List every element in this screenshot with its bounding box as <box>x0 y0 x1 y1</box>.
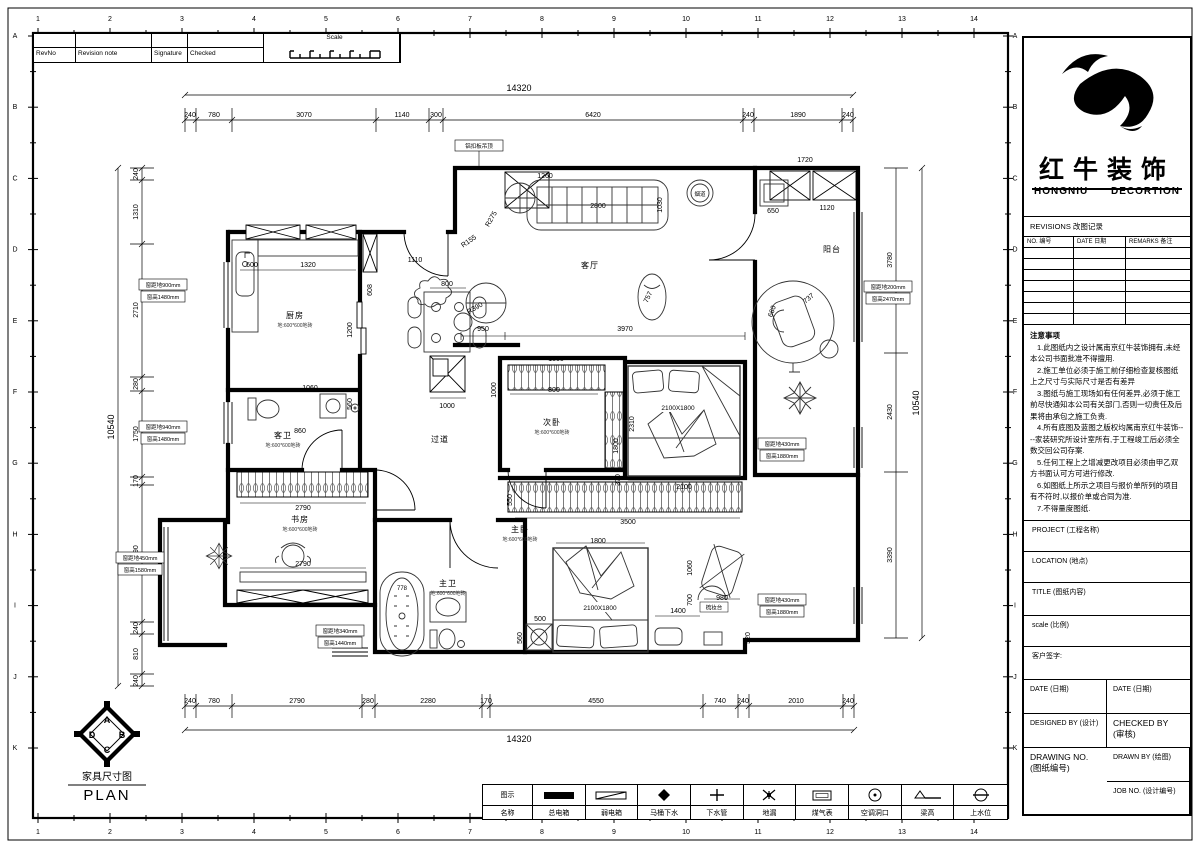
rev-cell <box>1024 303 1074 314</box>
dim: 700 <box>687 594 694 606</box>
ruler-letter-left: F <box>13 389 17 396</box>
dim: 240 <box>842 112 854 119</box>
dim: 2790 <box>295 505 311 512</box>
dim: 3500 <box>620 519 636 526</box>
window-note-line2: 窗高1440mm <box>324 639 357 647</box>
ruler-number-top: 12 <box>826 16 834 23</box>
dim: 300 <box>430 112 442 119</box>
dim: 240 <box>133 168 140 180</box>
field-designed-by: DESIGNED BY (设计) <box>1024 714 1107 748</box>
dim: 240 <box>184 112 196 119</box>
field-location: LOCATION (地点) <box>1024 552 1190 583</box>
ruler-number-bottom: 6 <box>396 829 400 836</box>
rev-cell <box>1024 259 1074 270</box>
window-note-line2: 窗高1480mm <box>147 293 180 301</box>
dim: 1110 <box>408 257 423 264</box>
armchair-back <box>644 285 660 289</box>
room-note: 地:600*600地砖 <box>265 442 300 449</box>
dim: 608 <box>367 284 374 296</box>
dim: 1060 <box>687 560 694 576</box>
dim: 3970 <box>617 326 633 333</box>
ruler-letter-left: H <box>12 531 17 538</box>
rev-cell <box>1074 292 1126 303</box>
window-note-line2: 窗高2470mm <box>872 295 905 303</box>
rev-cell <box>1074 281 1126 292</box>
dim: 2310 <box>629 416 636 432</box>
dim: 1120 <box>819 205 834 212</box>
plan-title-block: A B C D 家具尺寸图 PLAN <box>68 701 146 804</box>
window-note-line1: 窗距地900mm <box>146 281 181 289</box>
ruler-letter-right: B <box>1013 104 1018 111</box>
master-bed-size-label: 2100X1800 <box>583 605 617 612</box>
room-label-master-bath: 主卫 <box>439 578 457 588</box>
dim: 780 <box>208 112 220 119</box>
dim: 170 <box>480 698 492 705</box>
dim: 810 <box>133 648 140 660</box>
legend-name: 地漏 <box>744 806 797 820</box>
window-note-line2: 窗高1880mm <box>766 452 799 460</box>
ruler-number-top: 9 <box>612 16 616 23</box>
dim: 3390 <box>887 547 894 563</box>
dim: 240 <box>133 622 140 634</box>
ruler-letter-right: K <box>1013 745 1018 752</box>
company-logo-box: 红牛装饰 HONGNIU DECORTION <box>1024 38 1190 217</box>
dim: 240 <box>742 112 754 119</box>
dim: 1260 <box>537 173 553 180</box>
field-drawn-by: DRAWN BY (绘图) <box>1107 748 1190 782</box>
window-note-line1: 窗距地430mm <box>765 440 800 448</box>
note-item: 1.此图纸内之设计属南京红牛装饰拥有,未经本公司书面批准不得擅用. <box>1030 342 1184 365</box>
legend-symbol-toilet-drain <box>638 785 691 806</box>
master-misc <box>655 544 744 645</box>
dim: 2710 <box>133 302 140 318</box>
legend-symbol-beam-height <box>902 785 955 806</box>
room-note: 地:600*600地砖 <box>277 322 312 329</box>
ruler-letter-right: F <box>1013 389 1017 396</box>
company-name-cn: 红牛装饰 <box>1032 150 1182 190</box>
scale-bar <box>286 47 384 61</box>
room-note: 地:600*600地砖 <box>502 536 537 543</box>
field-job-no: JOB NO. (设计编号) <box>1107 782 1190 816</box>
ruler-number-bottom: 7 <box>468 829 472 836</box>
window-note: 窗距地340mm 窗高1440mm <box>316 625 364 648</box>
ruler-letter-left: K <box>13 745 18 752</box>
field-client-sign: 客户签字: <box>1024 647 1190 680</box>
ruler-number-top: 8 <box>540 16 544 23</box>
room-label-guest-bath: 客卫 <box>274 430 292 440</box>
ruler-letter-left: E <box>13 318 18 325</box>
ruler-number-bottom: 10 <box>682 829 690 836</box>
legend-symbol-floor-drain <box>744 785 797 806</box>
walls <box>160 168 858 652</box>
rev-cell <box>1024 281 1074 292</box>
rev-cell <box>1074 259 1126 270</box>
ruler-letter-left: G <box>12 460 17 467</box>
dim: 1890 <box>790 112 806 119</box>
ruler-letter-left: D <box>12 247 17 254</box>
ceiling-note-label: 铝扣板吊顶 <box>465 142 493 150</box>
window-note: 窗距地940mm 窗高1480mm <box>139 421 187 444</box>
dim: 1320 <box>300 262 316 269</box>
room-label-hallway: 过道 <box>431 434 449 444</box>
ruler-number-bottom: 2 <box>108 829 112 836</box>
ruler-number-bottom: 12 <box>826 829 834 836</box>
compass-b: B <box>119 730 126 740</box>
rev-cell <box>1126 270 1190 281</box>
dim: 1060 <box>302 385 318 392</box>
ruler-number-top: 10 <box>682 16 690 23</box>
ruler-letter-right: G <box>1012 460 1017 467</box>
compass-nub <box>134 731 140 737</box>
window-note: 窗距地450mm 窗高1580mm <box>116 552 164 575</box>
window-note-line2: 窗高1480mm <box>147 435 180 443</box>
dim: 1800 <box>590 538 606 545</box>
ruler-number-top: 6 <box>396 16 400 23</box>
dim: 1200 <box>347 322 354 338</box>
bed2-size-label: 2100X1800 <box>661 405 695 412</box>
dim: 2280 <box>420 698 436 705</box>
room-note: 地:600*600地砖 <box>282 526 317 533</box>
checked-header: Checked <box>188 48 263 57</box>
dim: 650 <box>767 208 779 215</box>
ruler-letter-right: D <box>1012 247 1017 254</box>
rev-cell <box>1074 270 1126 281</box>
rev-cell <box>1126 303 1190 314</box>
legend-name: 梁高 <box>902 806 955 820</box>
dim: 240 <box>842 698 854 705</box>
flue-label: 烟道 <box>694 190 706 198</box>
room-label-balcony: 阳台 <box>823 244 841 254</box>
room-label-bedroom2: 次卧 <box>543 417 561 427</box>
window-note-line1: 窗距地450mm <box>123 554 158 562</box>
note-item: 5.任何工程上之增减更改项目必须由甲乙双方书面认可方可进行修改. <box>1030 457 1184 480</box>
rev-cell <box>1074 248 1126 259</box>
dim: 600 <box>246 262 258 269</box>
ruler-number-bottom: 8 <box>540 829 544 836</box>
dim: 4550 <box>588 698 604 705</box>
ruler-number-bottom: 14 <box>970 829 978 836</box>
compass-a: A <box>104 715 111 725</box>
ruler-number-top: 13 <box>898 16 906 23</box>
legend-name: 空调洞口 <box>849 806 902 820</box>
legend-name: 总电箱 <box>533 806 586 820</box>
compass-nub <box>74 731 80 737</box>
legend-name: 下水管 <box>691 806 744 820</box>
company-en-right: DECORTION <box>1111 186 1180 197</box>
shower-box <box>526 624 552 650</box>
legend-name: 上水位 <box>954 806 1007 820</box>
room-label-study: 书房 <box>291 514 309 524</box>
compass-d: D <box>89 730 96 740</box>
title-block-panel: 红牛装饰 HONGNIU DECORTION REVISIONS 改图记录 NO… <box>1022 36 1192 816</box>
legend-symbol-low-voltage <box>586 785 639 806</box>
plan-title-cn: 家具尺寸图 <box>82 770 132 783</box>
rev-cell <box>1126 314 1190 325</box>
dim: R155 <box>460 234 478 249</box>
dim: 6420 <box>585 112 601 119</box>
compass-nub <box>104 701 110 707</box>
rev-cell <box>1024 248 1074 259</box>
dim: 240 <box>737 698 749 705</box>
window-note-line1: 窗距地200mm <box>871 283 906 291</box>
rev-cell <box>1126 259 1190 270</box>
revno-header: RevNo <box>34 48 75 57</box>
ruler-letter-right: I <box>1014 603 1016 610</box>
dim: 2800 <box>590 203 606 210</box>
compass-c: C <box>104 745 111 755</box>
dim: 240 <box>184 698 196 705</box>
compass-nub <box>104 761 110 767</box>
ruler-letter-right: H <box>1012 531 1017 538</box>
ruler-number-top: 4 <box>252 16 256 23</box>
window-note-line1: 窗距地340mm <box>323 627 358 635</box>
field-scale: scale (比例) <box>1024 616 1190 647</box>
ruler-number-bottom: 1 <box>36 829 40 836</box>
dim: 550 <box>507 494 514 506</box>
rev-col-no: NO. 编号 <box>1024 237 1074 248</box>
dim: 1720 <box>797 157 813 164</box>
rev-col-remarks: REMARKS 备注 <box>1126 237 1190 248</box>
field-checked-by: CHECKED BY (审核) <box>1107 714 1190 748</box>
revision-strip: RevNo Revision note Signature Checked Sc… <box>33 33 401 63</box>
room-note: 地:600*600地砖 <box>534 429 569 436</box>
dim: 800 <box>548 387 560 394</box>
dim: 950 <box>477 326 489 333</box>
dim: 280 <box>133 378 140 390</box>
dim: 2010 <box>788 698 804 705</box>
window-note: 窗距地430mm 窗高1880mm <box>758 438 806 461</box>
ruler-number-top: 5 <box>324 16 328 23</box>
window-note-line2: 窗高1880mm <box>766 608 799 616</box>
legend-symbol-header: 图示 <box>483 785 533 806</box>
company-name-en: HONGNIU DECORTION <box>1034 186 1180 197</box>
rev-cell <box>1024 292 1074 303</box>
dim: 980 <box>716 595 728 602</box>
dim: 2100 <box>676 484 692 491</box>
rev-cell <box>1126 281 1190 292</box>
legend-symbol-ac-hole <box>849 785 902 806</box>
plan-title-en: PLAN <box>83 787 130 804</box>
window-note-line1: 窗距地430mm <box>765 596 800 604</box>
room-label-master: 主卧 <box>511 524 529 534</box>
dim: 778 <box>397 586 408 592</box>
dim: R390 <box>466 301 484 315</box>
notes-block: 注意事项 1.此图纸内之设计属南京红牛装饰拥有,未经本公司书面批准不得擅用. 2… <box>1024 325 1190 521</box>
rev-cell <box>1024 270 1074 281</box>
dresser-label: 梳妆台 <box>706 604 723 612</box>
ruler-number-bottom: 3 <box>180 829 184 836</box>
plan-canvas: 11223344556677889910101111121213131414AA… <box>0 0 1200 848</box>
field-title: TITLE (图纸内容) <box>1024 583 1190 616</box>
dim: 740 <box>714 698 726 705</box>
dim: 1140 <box>394 112 409 119</box>
window-note: 窗距地200mm 窗高2470mm <box>864 281 912 304</box>
dim: R275 <box>484 210 498 228</box>
rev-cell <box>1126 292 1190 303</box>
note-item: 6.如图纸上所示之项目与报价单所列的项目有不符时,以报价单或合同为准. <box>1030 480 1184 503</box>
rev-cell <box>1024 314 1074 325</box>
window-annotations: 窗距地900mm 窗高1480mm 窗距地940mm 窗高1480mm 窗距地4… <box>116 279 912 648</box>
dim: 560 <box>517 632 524 644</box>
ruler-letter-left: J <box>13 674 17 681</box>
rev-cell <box>1074 303 1126 314</box>
legend-name: 煤气表 <box>796 806 849 820</box>
room-note: 地:600*600地砖 <box>430 590 465 597</box>
ruler-number-top: 3 <box>180 16 184 23</box>
dim: 860 <box>294 428 306 435</box>
scale-header: Scale <box>326 34 342 41</box>
dim: 280 <box>362 698 374 705</box>
dim: 2790 <box>289 698 305 705</box>
ruler-number-bottom: 5 <box>324 829 328 836</box>
bed-master <box>553 546 648 652</box>
dim: 1000 <box>491 382 498 398</box>
field-project: PROJECT (工程名称) <box>1024 521 1190 552</box>
ruler-number-bottom: 4 <box>252 829 256 836</box>
window-note: 窗距地900mm 窗高1480mm <box>139 279 187 302</box>
dim: 3070 <box>296 112 312 119</box>
drawing-sheet: 11223344556677889910101111121213131414AA… <box>0 0 1200 848</box>
notes-title: 注意事项 <box>1030 330 1184 342</box>
window-note-line2: 窗高1580mm <box>124 566 157 574</box>
dim: 500 <box>534 616 546 623</box>
company-en-left: HONGNIU <box>1034 186 1088 197</box>
dim: 800 <box>441 281 453 288</box>
rev-cell <box>1126 248 1190 259</box>
dim: 780 <box>208 698 220 705</box>
guest-bath-fixtures <box>248 394 359 420</box>
signature-header: Signature <box>152 48 187 57</box>
bed-bedroom2 <box>628 366 740 476</box>
dim: 1400 <box>670 608 686 615</box>
note-item: 2.施工单位必须于施工前仔细检查复核图纸上之尺寸与实际尺寸是否有差异 <box>1030 365 1184 388</box>
window-note-line1: 窗距地940mm <box>146 423 181 431</box>
ruler-number-top: 14 <box>970 16 978 23</box>
dim: 520 <box>745 632 752 644</box>
dim-top-total: 14320 <box>506 83 531 93</box>
room-label-living: 客厅 <box>581 260 599 270</box>
dim: 1800 <box>613 438 620 454</box>
dim: 1000 <box>439 403 455 410</box>
rev-col-date: DATE 日期 <box>1074 237 1126 248</box>
legend-symbol-main-electric <box>533 785 586 806</box>
window-note: 窗距地430mm 窗高1880mm <box>758 594 806 617</box>
ruler-number-bottom: 9 <box>612 829 616 836</box>
field-drawing-no: DRAWING NO. (图纸编号) <box>1024 748 1107 816</box>
revisions-table: NO. 编号 DATE 日期 REMARKS 备注 <box>1024 237 1190 325</box>
dim-bottom-total: 14320 <box>506 734 531 744</box>
dim: 370 <box>615 474 622 486</box>
legend-name-header: 名称 <box>483 806 533 820</box>
dim: 737 <box>802 292 816 305</box>
ruler-letter-left: C <box>12 175 17 182</box>
legend-name: 马桶下水 <box>638 806 691 820</box>
ruler-letter-left: A <box>13 33 18 40</box>
company-logo-icon <box>1024 40 1190 148</box>
ruler-number-bottom: 13 <box>898 829 906 836</box>
room-label-kitchen: 厨房 <box>286 310 304 320</box>
note-item: 3.图纸与施工现场如有任何差异,必须于施工前尽快通知本公司有关部门,否则一切责任… <box>1030 388 1184 423</box>
legend-symbol-water-supply <box>954 785 1007 806</box>
dim: 1310 <box>133 204 140 220</box>
ruler-number-top: 1 <box>36 16 40 23</box>
dim: 757 <box>643 291 654 305</box>
ruler-letter-right: J <box>1013 674 1017 681</box>
dim: 560 <box>347 398 354 410</box>
legend-symbol-gas-meter <box>796 785 849 806</box>
legend-symbol-drain-pipe <box>691 785 744 806</box>
note-item: 4.所有底图及蓝图之版权均属南京红牛装饰----家装研究所设计室所有,于工程竣工… <box>1030 422 1184 457</box>
field-date-left: DATE (日期) <box>1024 680 1107 714</box>
dim: 1030 <box>657 197 664 213</box>
ruler-letter-right: C <box>1012 175 1017 182</box>
dim-left-total: 10540 <box>106 414 116 439</box>
dim-right-total: 10540 <box>911 390 921 415</box>
revisions-header: REVISIONS 改图记录 <box>1024 217 1190 237</box>
dim: 170 <box>133 475 140 487</box>
ruler-number-top: 7 <box>468 16 472 23</box>
dim: 660 <box>767 305 778 318</box>
ruler-number-top: 2 <box>108 16 112 23</box>
field-date-right: DATE (日期) <box>1107 680 1190 714</box>
legend-table: 图示 名称 总电箱 弱电箱 马桶下水 下水管 地漏 煤气表 空调洞口 梁高 上水… <box>482 784 1008 820</box>
dim: 1500 <box>548 356 564 363</box>
note-item: 7.不得量度图纸. <box>1030 503 1184 515</box>
ruler-number-top: 11 <box>754 16 761 23</box>
rev-cell <box>1074 314 1126 325</box>
dim: 2430 <box>887 404 894 420</box>
ruler-letter-left: B <box>13 104 18 111</box>
ruler-number-bottom: 11 <box>754 829 761 836</box>
legend-name: 弱电箱 <box>586 806 639 820</box>
dim: 2790 <box>295 561 311 568</box>
revision-note-header: Revision note <box>76 48 151 57</box>
ruler-letter-right: E <box>1013 318 1018 325</box>
ruler-letter-left: I <box>14 603 16 610</box>
dim: 3780 <box>887 252 894 268</box>
dim: 240 <box>133 675 140 687</box>
ruler-letter-right: A <box>1013 33 1018 40</box>
